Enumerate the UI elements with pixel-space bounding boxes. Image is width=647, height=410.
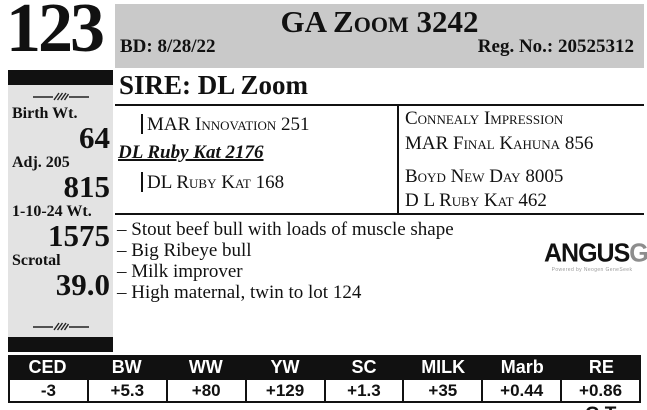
angus-wordmark: ANGUS bbox=[544, 238, 629, 267]
header-band: GA Zoom 3242 BD: 8/28/22 Reg. No.: 20525… bbox=[115, 4, 644, 68]
epd-value-cell: +5.3 bbox=[87, 380, 166, 401]
stat-value: 815 bbox=[8, 172, 113, 201]
stat-birth-wt: Birth Wt. 64 bbox=[8, 103, 113, 152]
angus-gs-logo: ANGUSGS Powered by Neogen GeneSeek bbox=[544, 241, 640, 273]
epd-header-cell: WW bbox=[166, 357, 245, 378]
epd-value-cell: +80 bbox=[166, 380, 245, 401]
epd-header-cell: BW bbox=[87, 357, 166, 378]
rope-ornament bbox=[8, 321, 113, 333]
note-item: – Big Ribeye bull bbox=[117, 241, 547, 262]
stat-scrotal: Scrotal 39.0 bbox=[8, 250, 113, 299]
sidebar-top-bar bbox=[8, 70, 113, 85]
pedigree-bracket bbox=[141, 172, 143, 192]
pedigree-dam-dam: DL Ruby Kat 168 bbox=[141, 172, 397, 195]
lot-number: 123 bbox=[6, 0, 102, 66]
sire-heading: SIRE: DL Zoom bbox=[115, 70, 644, 101]
gs-wordmark: GS bbox=[629, 238, 647, 267]
partial-bottom-mark: GT bbox=[585, 404, 621, 410]
catalog-page: 123 GA Zoom 3242 BD: 8/28/22 Reg. No.: 2… bbox=[0, 0, 647, 410]
epd-header-cell: CED bbox=[8, 357, 87, 378]
epd-value-cell: +35 bbox=[402, 380, 481, 401]
note-item: – Milk improver bbox=[117, 262, 547, 283]
pedigree-table: MAR Innovation 251 DL Ruby Kat 2176 DL R… bbox=[115, 104, 644, 215]
animal-name-title: GA Zoom 3242 bbox=[115, 6, 644, 39]
sidebar-bottom-bar bbox=[8, 337, 113, 352]
pedigree-ancestor: Boyd New Day 8005 bbox=[405, 166, 644, 189]
birth-date: BD: 8/28/22 bbox=[120, 36, 216, 58]
note-item: – Stout beef bull with loads of muscle s… bbox=[117, 220, 547, 241]
stat-value: 1575 bbox=[8, 221, 113, 250]
logo-tagline: Powered by Neogen GeneSeek bbox=[544, 268, 640, 273]
epd-value-row: -3 +5.3 +80 +129 +1.3 +35 +0.44 +0.86 bbox=[8, 380, 641, 403]
epd-value-cell: +129 bbox=[245, 380, 324, 401]
stat-value: 64 bbox=[8, 123, 113, 152]
epd-header-cell: Marb bbox=[483, 357, 562, 378]
epd-value-cell: +1.3 bbox=[324, 380, 403, 401]
epd-value-cell: +0.86 bbox=[560, 380, 639, 401]
pedigree-ancestor: MAR Final Kahuna 856 bbox=[405, 133, 644, 156]
pedigree-ancestor: D L Ruby Kat 462 bbox=[405, 190, 644, 213]
epd-value-cell: +0.44 bbox=[481, 380, 560, 401]
rope-ornament bbox=[8, 91, 113, 103]
stats-sidebar: Birth Wt. 64 Adj. 205 815 1-10-24 Wt. 15… bbox=[8, 85, 113, 337]
epd-value-cell: -3 bbox=[10, 380, 87, 401]
pedigree-dam: DL Ruby Kat 2176 bbox=[118, 142, 397, 164]
epd-header-row: CED BW WW YW SC MILK Marb RE bbox=[8, 355, 641, 380]
pedigree-ancestors: Connealy Impression MAR Final Kahuna 856… bbox=[397, 106, 644, 213]
sale-notes: – Stout beef bull with loads of muscle s… bbox=[115, 220, 547, 304]
epd-header-cell: SC bbox=[325, 357, 404, 378]
registration-number: Reg. No.: 20525312 bbox=[478, 36, 634, 58]
pedigree-dam-sire: MAR Innovation 251 bbox=[141, 114, 397, 137]
note-item: – High maternal, twin to lot 124 bbox=[117, 283, 547, 304]
stat-value: 39.0 bbox=[8, 270, 113, 299]
epd-header-cell: YW bbox=[245, 357, 324, 378]
pedigree-dam-side: MAR Innovation 251 DL Ruby Kat 2176 DL R… bbox=[115, 106, 397, 213]
epd-header-cell: RE bbox=[562, 357, 641, 378]
pedigree-ancestor: Connealy Impression bbox=[405, 108, 644, 131]
epd-header-cell: MILK bbox=[404, 357, 483, 378]
pedigree-bracket bbox=[141, 114, 143, 134]
stat-current-wt: 1-10-24 Wt. 1575 bbox=[8, 201, 113, 250]
epd-table: CED BW WW YW SC MILK Marb RE -3 +5.3 +80… bbox=[8, 355, 641, 403]
stat-adj-205: Adj. 205 815 bbox=[8, 152, 113, 201]
